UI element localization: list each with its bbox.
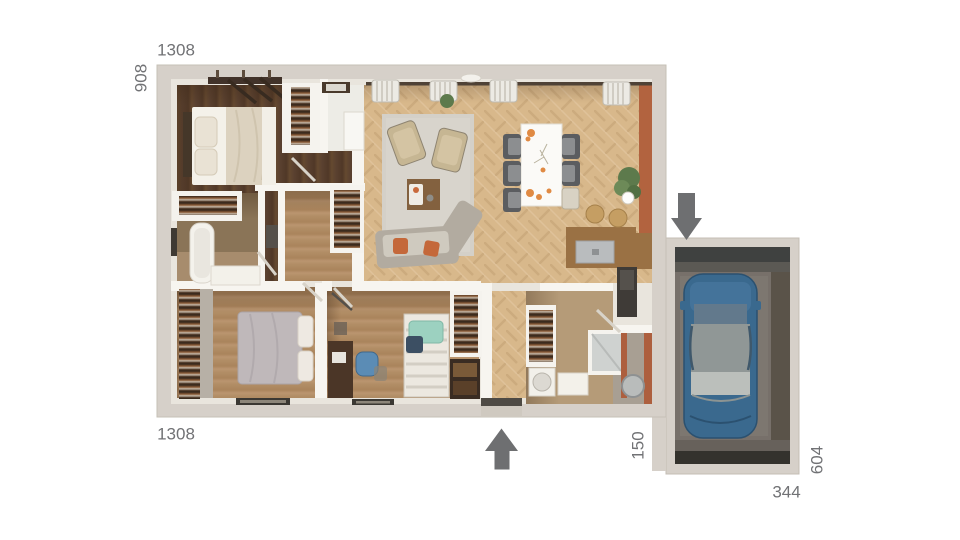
svg-text:1308: 1308 <box>157 41 195 60</box>
svg-text:150: 150 <box>629 431 648 459</box>
svg-text:908: 908 <box>132 64 151 92</box>
svg-text:344: 344 <box>772 483 800 502</box>
svg-text:1308: 1308 <box>157 425 195 444</box>
svg-text:604: 604 <box>808 446 827 474</box>
